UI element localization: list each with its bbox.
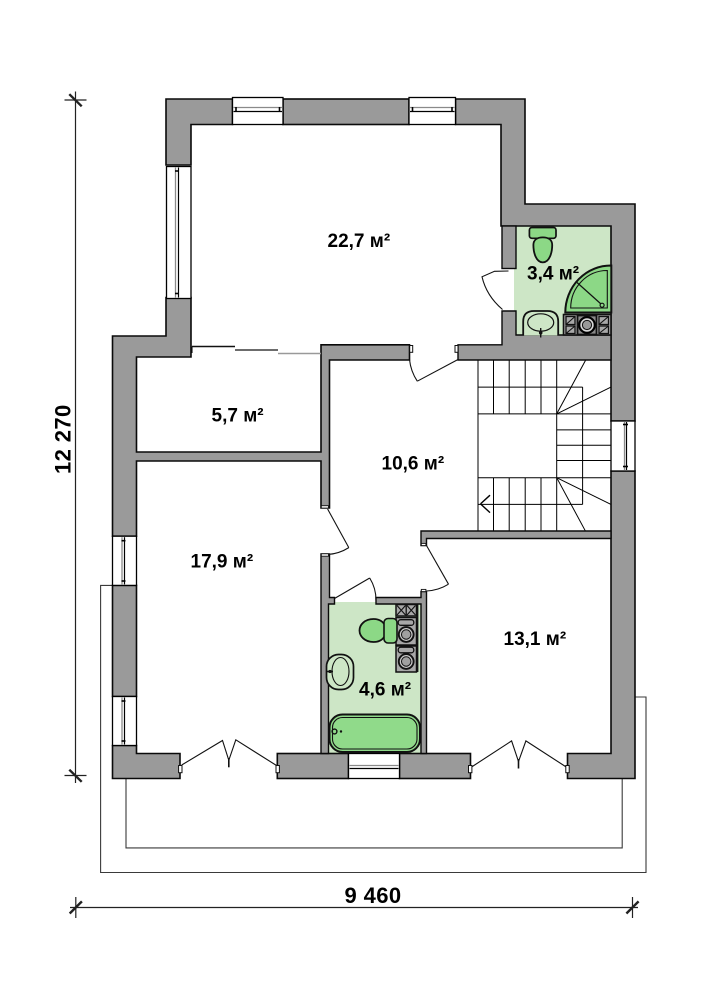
svg-text:22,7 м²: 22,7 м² bbox=[328, 231, 391, 252]
svg-text:13,1 м²: 13,1 м² bbox=[504, 629, 567, 650]
svg-text:17,9 м²: 17,9 м² bbox=[191, 552, 254, 573]
svg-text:9 460: 9 460 bbox=[345, 883, 402, 908]
svg-text:3,4 м²: 3,4 м² bbox=[527, 264, 579, 285]
svg-text:10,6 м²: 10,6 м² bbox=[382, 454, 445, 475]
svg-text:5,7 м²: 5,7 м² bbox=[212, 406, 264, 427]
svg-text:4,6 м²: 4,6 м² bbox=[359, 680, 411, 701]
svg-text:12 270: 12 270 bbox=[51, 404, 76, 474]
